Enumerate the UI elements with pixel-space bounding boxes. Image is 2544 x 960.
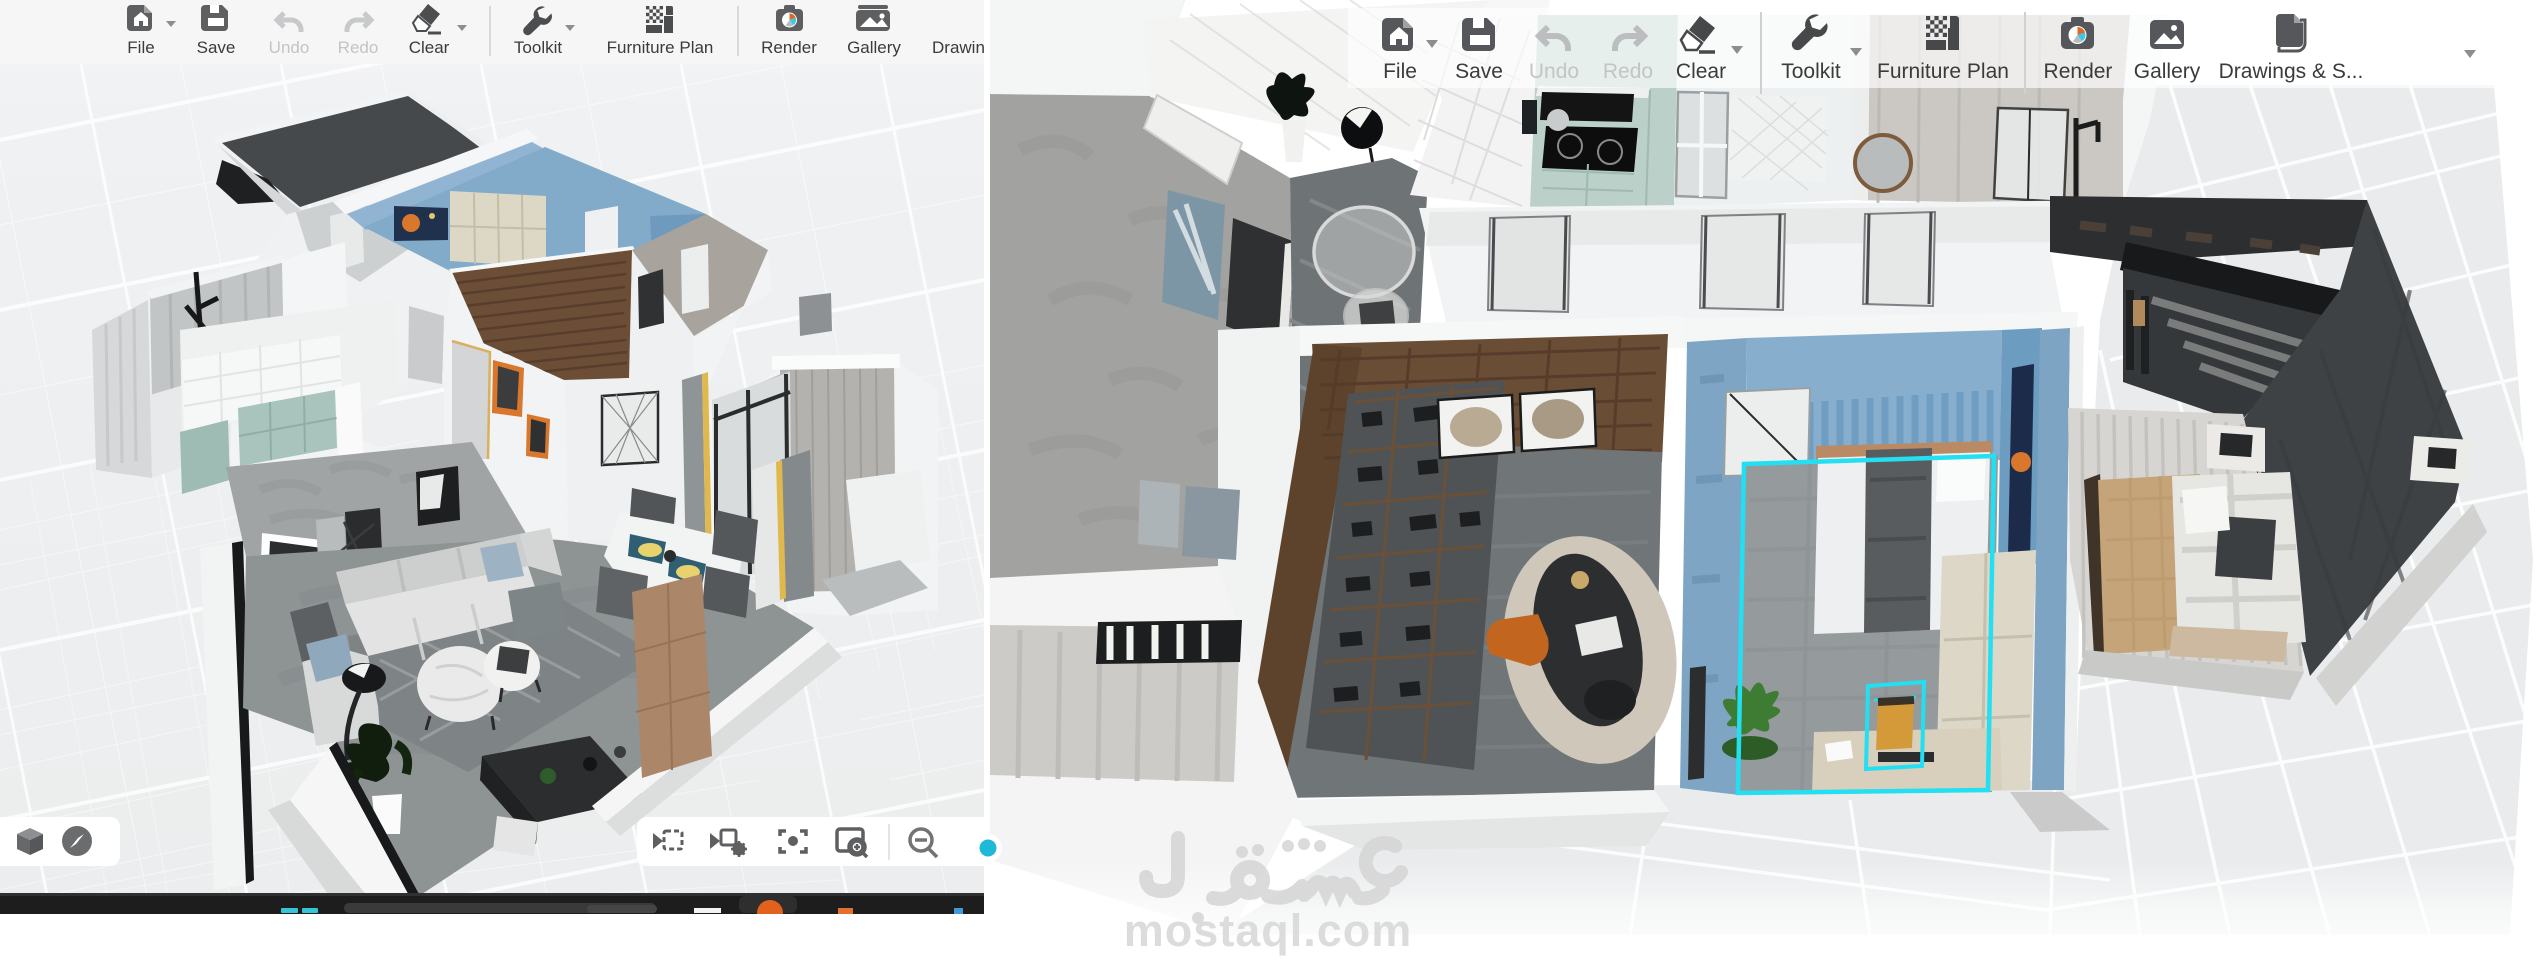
svg-text:Gallery: Gallery [847,38,901,57]
svg-text:Clear: Clear [409,38,450,57]
svg-text:Furniture Plan: Furniture Plan [1877,60,2009,83]
svg-text:Save: Save [1455,60,1503,83]
svg-text:Furniture Plan: Furniture Plan [607,38,714,57]
svg-text:Render: Render [761,38,817,57]
svg-text:Clear: Clear [1676,60,1726,83]
svg-text:Undo: Undo [1529,60,1579,83]
svg-text:Drawings & S...: Drawings & S... [2219,60,2364,83]
svg-text:Toolkit: Toolkit [514,38,562,57]
svg-text:File: File [1383,60,1417,83]
svg-text:Undo: Undo [269,38,310,57]
svg-text:mostaql.com: mostaql.com [1124,905,1413,956]
svg-text:Render: Render [2044,60,2113,83]
svg-text:Redo: Redo [338,38,379,57]
svg-text:Save: Save [197,38,236,57]
svg-text:File: File [127,38,154,57]
svg-text:Redo: Redo [1603,60,1653,83]
svg-text:Gallery: Gallery [2134,60,2201,83]
svg-text:Toolkit: Toolkit [1781,60,1841,83]
svg-text:Drawin: Drawin [932,38,984,57]
